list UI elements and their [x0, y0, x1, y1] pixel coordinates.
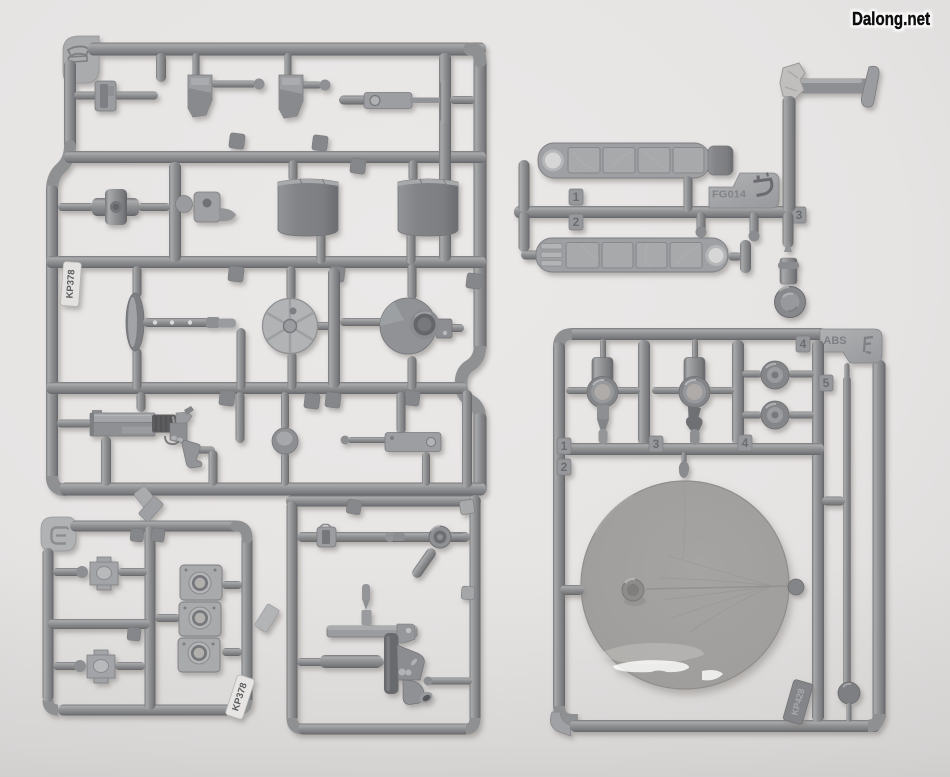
- svg-text:FG014: FG014: [712, 189, 746, 201]
- svg-text:4: 4: [800, 337, 807, 351]
- svg-text:3: 3: [796, 208, 803, 222]
- svg-text:4: 4: [742, 436, 749, 450]
- svg-text:2: 2: [561, 460, 568, 474]
- svg-text:1: 1: [561, 439, 568, 453]
- svg-text:2: 2: [573, 215, 580, 229]
- svg-text:5: 5: [823, 376, 830, 390]
- svg-text:1: 1: [573, 190, 580, 204]
- svg-text:3: 3: [653, 437, 660, 451]
- svg-text:KP378: KP378: [64, 269, 77, 299]
- svg-text:ABS: ABS: [823, 335, 846, 347]
- svg-text:Dalong.net: Dalong.net: [852, 8, 930, 29]
